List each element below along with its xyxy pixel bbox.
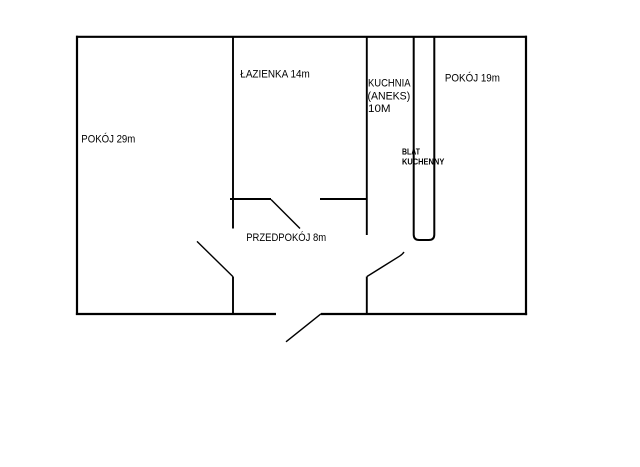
svg-text:ŁAZIENKA 14m: ŁAZIENKA 14m [240,69,309,81]
svg-text:POKÓJ 19m: POKÓJ 19m [445,71,500,84]
svg-text:10M: 10M [368,103,391,115]
svg-text:POKÓJ 29m: POKÓJ 29m [81,133,135,146]
svg-text:KUCHNIA: KUCHNIA [368,77,411,89]
svg-text:BLAT: BLAT [402,148,420,157]
svg-text:(ANEKS): (ANEKS) [368,91,411,103]
svg-text:KUCHENNY: KUCHENNY [402,158,445,167]
svg-text:PRZEDPOKÓJ 8m: PRZEDPOKÓJ 8m [246,231,326,244]
